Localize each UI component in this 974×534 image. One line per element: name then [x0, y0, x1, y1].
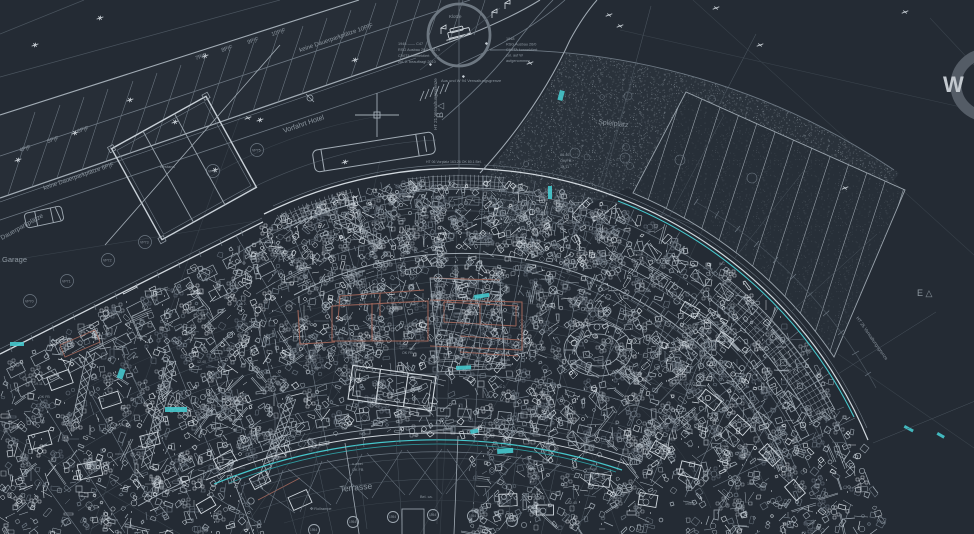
svg-text:19.11: 19.11: [34, 382, 43, 386]
svg-text:1948 —— C47: 1948 —— C47: [398, 42, 423, 46]
svg-text:+80.46: +80.46: [693, 322, 704, 326]
svg-text:zul. auf W: zul. auf W: [506, 54, 523, 58]
svg-text:✠ Rollrampe: ✠ Rollrampe: [310, 507, 332, 511]
svg-text:12.40: 12.40: [568, 501, 577, 505]
svg-text:19.11: 19.11: [571, 202, 580, 206]
svg-text:1954: 1954: [508, 519, 515, 523]
svg-text:Bar: Bar: [589, 448, 595, 452]
svg-text:CIVITA konnektiert: CIVITA konnektiert: [398, 54, 430, 58]
svg-text:RSG Ausbau 26/0 19175: RSG Ausbau 26/0 19175: [398, 48, 440, 52]
svg-text:OK FB: OK FB: [39, 395, 50, 399]
svg-text:Lager: Lager: [312, 366, 322, 370]
svg-text:WC: WC: [409, 347, 415, 351]
svg-text:CWC: CWC: [473, 296, 485, 302]
svg-text:CIVITA konnektiert: CIVITA konnektiert: [506, 48, 538, 52]
svg-text:E △: E △: [917, 288, 933, 298]
svg-text:Bar: Bar: [133, 355, 139, 359]
svg-text:Aus und W 94 Verwaltungsgrenze: Aus und W 94 Verwaltungsgrenze: [441, 78, 502, 83]
svg-text:zu 2.: zu 2.: [655, 324, 663, 328]
svg-text:VP72: VP72: [103, 259, 112, 263]
svg-text:12.40: 12.40: [197, 360, 206, 364]
svg-text:WC: WC: [359, 432, 365, 436]
svg-text:80.46: 80.46: [560, 153, 570, 157]
svg-text:VP75: VP75: [252, 149, 261, 153]
svg-text:zu 2.: zu 2.: [239, 302, 247, 306]
svg-text:1954: 1954: [429, 513, 436, 517]
svg-text:1948: 1948: [506, 37, 514, 41]
svg-text:Bestand: Bestand: [160, 164, 175, 169]
svg-text:1954: 1954: [747, 482, 755, 486]
svg-text:WC: WC: [806, 349, 812, 353]
svg-text:Lager: Lager: [149, 478, 159, 482]
svg-text:VP70: VP70: [25, 300, 34, 304]
svg-text:12.40: 12.40: [389, 296, 398, 300]
svg-text:OK FB: OK FB: [352, 468, 364, 472]
svg-text:zu 2.: zu 2.: [115, 423, 123, 427]
svg-text:OK/FB: OK/FB: [560, 159, 572, 163]
svg-text:zu 2.: zu 2.: [721, 444, 729, 448]
svg-text:VP71: VP71: [62, 280, 71, 284]
svg-text:W: W: [943, 72, 964, 97]
svg-text:WC: WC: [719, 262, 725, 266]
svg-text:VP73: VP73: [140, 241, 149, 245]
svg-text:Bel. ca.: Bel. ca.: [420, 495, 433, 499]
svg-text:1954: 1954: [685, 502, 693, 506]
svg-text:1954: 1954: [389, 515, 396, 519]
svg-text:OK FB: OK FB: [402, 351, 413, 355]
svg-text:1954: 1954: [349, 520, 356, 524]
svg-text:1954: 1954: [310, 528, 317, 532]
svg-text:aufgenommen: aufgenommen: [506, 59, 530, 63]
svg-text:Klotze: Klotze: [449, 14, 462, 19]
svg-text:B △: B △: [435, 102, 445, 118]
svg-text:RSG Ausbau 26/0: RSG Ausbau 26/0: [506, 43, 536, 47]
svg-text:Garage: Garage: [2, 255, 27, 264]
svg-text:VP74: VP74: [208, 170, 217, 174]
svg-text:u.zwei: u.zwei: [352, 462, 363, 466]
svg-text:HT 06 Vorplatz 163.26 OK 80: HT 06 Vorplatz 163.26 OK 80.1 Bel.: [426, 160, 482, 164]
svg-text:zu 2.: zu 2.: [498, 385, 506, 389]
svg-text:19.11: 19.11: [560, 165, 569, 169]
svg-text:OK FB: OK FB: [671, 382, 682, 386]
